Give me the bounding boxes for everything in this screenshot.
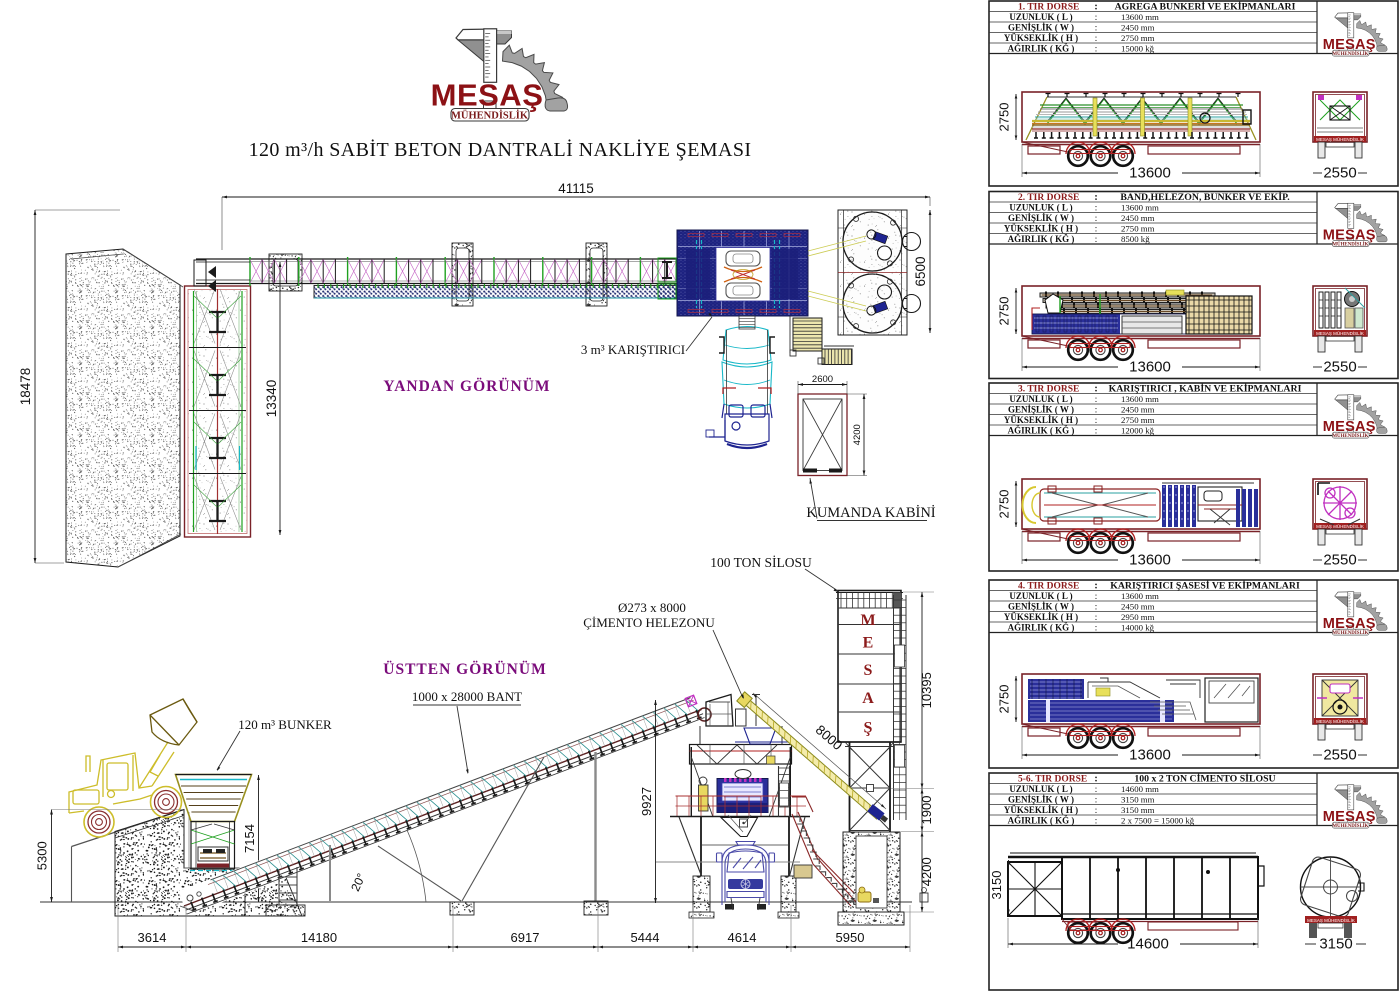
svg-text::: :	[1095, 784, 1098, 794]
svg-text::: :	[1095, 224, 1098, 234]
svg-text:6500: 6500	[913, 256, 928, 286]
svg-text:1000 x 28000 BANT: 1000 x 28000 BANT	[412, 689, 522, 704]
svg-text:100 x 2 TON CİMENTO SİLOSU: 100 x 2 TON CİMENTO SİLOSU	[1134, 772, 1275, 784]
svg-text:2950 mm: 2950 mm	[1121, 612, 1155, 622]
svg-text::: :	[1095, 805, 1098, 815]
svg-text:10395: 10395	[919, 672, 934, 708]
svg-text:13600 mm: 13600 mm	[1121, 12, 1159, 22]
svg-text::: :	[1095, 394, 1098, 404]
svg-text:UZUNLUK ( L ): UZUNLUK ( L )	[1009, 394, 1072, 404]
svg-text:KARIŞTIRICI , KABİN VE EKİPMAN: KARIŞTIRICI , KABİN VE EKİPMANLARI	[1109, 382, 1302, 394]
svg-text::: :	[1095, 234, 1098, 244]
svg-text:12000 kğ: 12000 kğ	[1121, 426, 1155, 436]
svg-text:3. TIR DORSE: 3. TIR DORSE	[1018, 384, 1079, 394]
svg-text:14600 mm: 14600 mm	[1121, 784, 1159, 794]
svg-text:3150 mm: 3150 mm	[1121, 795, 1155, 805]
svg-text::: :	[1095, 612, 1098, 622]
svg-text:YÜKSEKLİK ( H ): YÜKSEKLİK ( H )	[1004, 612, 1078, 622]
svg-text::: :	[1095, 203, 1098, 213]
svg-text::: :	[1095, 213, 1098, 223]
svg-text::: :	[1095, 12, 1098, 22]
svg-text:E: E	[863, 635, 874, 652]
svg-text:15000 kğ: 15000 kğ	[1121, 44, 1155, 54]
svg-text:2 x 7500 = 15000 kğ: 2 x 7500 = 15000 kğ	[1121, 816, 1195, 826]
svg-text:2750 mm: 2750 mm	[1121, 415, 1155, 425]
svg-text:9927: 9927	[639, 787, 654, 816]
svg-text:GENİŞLİK ( W ): GENİŞLİK ( W )	[1008, 213, 1074, 223]
svg-text:6917: 6917	[511, 930, 540, 945]
svg-text:MESAŞ MÜHENDİSLİK: MESAŞ MÜHENDİSLİK	[1316, 330, 1364, 336]
svg-text:14600: 14600	[1127, 936, 1169, 953]
svg-text:5-6. TIR DORSE: 5-6. TIR DORSE	[1018, 774, 1087, 784]
svg-text:4200: 4200	[852, 424, 863, 445]
svg-text::: :	[1095, 591, 1098, 601]
svg-text:13600: 13600	[1129, 165, 1171, 182]
svg-text:13600 mm: 13600 mm	[1121, 394, 1159, 404]
svg-text:UZUNLUK ( L ): UZUNLUK ( L )	[1009, 203, 1072, 213]
svg-text:4. TIR DORSE: 4. TIR DORSE	[1018, 581, 1079, 591]
svg-text:2750: 2750	[997, 685, 1012, 714]
svg-text:AĞIRLIK ( KĞ ): AĞIRLIK ( KĞ )	[1008, 234, 1075, 244]
svg-text:13600: 13600	[1129, 359, 1171, 376]
svg-text:ÇİMENTO HELEZONU: ÇİMENTO HELEZONU	[583, 615, 715, 630]
svg-text:MÜHENDİSLİK: MÜHENDİSLİK	[451, 109, 529, 122]
svg-text:2750: 2750	[997, 297, 1012, 326]
svg-text:UZUNLUK ( L ): UZUNLUK ( L )	[1009, 591, 1072, 601]
svg-text:3150: 3150	[989, 871, 1004, 900]
svg-text::: :	[1095, 33, 1098, 43]
svg-text:MESAŞ MÜHENDİSLİK: MESAŞ MÜHENDİSLİK	[1316, 718, 1364, 724]
svg-text::: :	[1094, 581, 1097, 592]
svg-text::: :	[1094, 192, 1097, 203]
svg-text:13340: 13340	[264, 380, 279, 418]
svg-text:3150: 3150	[1319, 936, 1352, 953]
svg-text:GENİŞLİK ( W ): GENİŞLİK ( W )	[1008, 23, 1074, 33]
svg-text::: :	[1095, 602, 1098, 612]
svg-text::: :	[1095, 23, 1098, 33]
svg-text:1900: 1900	[919, 796, 934, 825]
svg-text:A: A	[862, 690, 874, 707]
svg-text:UZUNLUK ( L ): UZUNLUK ( L )	[1009, 12, 1072, 22]
svg-text:1. TIR DORSE: 1. TIR DORSE	[1018, 2, 1079, 12]
svg-text:2450 mm: 2450 mm	[1121, 23, 1155, 33]
svg-text:3150 mm: 3150 mm	[1121, 805, 1155, 815]
svg-text:S: S	[864, 662, 873, 679]
svg-text:3 m³ KARIŞTIRICI: 3 m³ KARIŞTIRICI	[581, 342, 685, 357]
svg-text:7154: 7154	[242, 824, 257, 853]
svg-text:YÜKSEKLİK ( H ): YÜKSEKLİK ( H )	[1004, 224, 1078, 234]
svg-text:2750 mm: 2750 mm	[1121, 224, 1155, 234]
svg-text:2550: 2550	[1323, 359, 1356, 376]
svg-text:M: M	[860, 612, 875, 629]
svg-text::: :	[1095, 405, 1098, 415]
svg-text:2450 mm: 2450 mm	[1121, 213, 1155, 223]
svg-text:YÜKSEKLİK ( H ): YÜKSEKLİK ( H )	[1004, 415, 1078, 425]
svg-text::: :	[1094, 384, 1097, 395]
svg-text:41115: 41115	[558, 181, 594, 196]
svg-text:100 TON SİLOSU: 100 TON SİLOSU	[710, 555, 812, 570]
svg-text:14000 kğ: 14000 kğ	[1121, 623, 1155, 633]
svg-text:2750: 2750	[997, 490, 1012, 519]
svg-text:13600 mm: 13600 mm	[1121, 203, 1159, 213]
svg-text:GENİŞLİK ( W ): GENİŞLİK ( W )	[1008, 405, 1074, 415]
svg-text::: :	[1095, 415, 1098, 425]
svg-text:MESAŞ: MESAŞ	[431, 78, 544, 113]
svg-text:KUMANDA KABİNİ: KUMANDA KABİNİ	[806, 505, 935, 521]
svg-text:2550: 2550	[1323, 747, 1356, 764]
svg-text::: :	[1094, 774, 1097, 785]
svg-text:13600 mm: 13600 mm	[1121, 591, 1159, 601]
svg-text:GENİŞLİK ( W ): GENİŞLİK ( W )	[1008, 602, 1074, 612]
svg-text:YÜKSEKLİK ( H ): YÜKSEKLİK ( H )	[1004, 33, 1078, 43]
svg-text:120 m³ BUNKER: 120 m³ BUNKER	[238, 717, 332, 732]
svg-text::: :	[1095, 44, 1098, 54]
svg-text:2550: 2550	[1323, 165, 1356, 182]
svg-text:2. TIR DORSE: 2. TIR DORSE	[1018, 193, 1079, 203]
svg-text::: :	[1095, 426, 1098, 436]
svg-text:5444: 5444	[631, 930, 660, 945]
svg-text:AĞIRLIK ( KĞ ): AĞIRLIK ( KĞ )	[1008, 426, 1075, 436]
svg-text:AGREGA BUNKERİ VE EKİPMANLARI: AGREGA BUNKERİ VE EKİPMANLARI	[1115, 0, 1296, 12]
svg-text:AĞIRLIK ( KĞ ): AĞIRLIK ( KĞ )	[1008, 44, 1075, 54]
svg-text::: :	[1095, 623, 1098, 633]
svg-text:2450 mm: 2450 mm	[1121, 602, 1155, 612]
svg-text:ÜSTTEN GÖRÜNÜM: ÜSTTEN GÖRÜNÜM	[383, 661, 546, 678]
svg-text:4614: 4614	[728, 930, 757, 945]
svg-text:13600: 13600	[1129, 552, 1171, 569]
svg-text:18478: 18478	[18, 368, 33, 406]
svg-text:GENİŞLİK ( W ): GENİŞLİK ( W )	[1008, 795, 1074, 805]
svg-text:5950: 5950	[836, 930, 865, 945]
svg-text:2550: 2550	[1323, 552, 1356, 569]
svg-text:4200: 4200	[919, 857, 934, 886]
svg-text:BAND,HELEZON, BUNKER VE EKİP.: BAND,HELEZON, BUNKER VE EKİP.	[1120, 191, 1290, 203]
svg-text:Ş: Ş	[864, 720, 873, 737]
svg-text:13600: 13600	[1129, 747, 1171, 764]
svg-text:8500 kğ: 8500 kğ	[1121, 234, 1150, 244]
svg-text:Ø273 x 8000: Ø273 x 8000	[618, 600, 686, 615]
svg-text:120 m³/h SABİT BETON DANTRALİ: 120 m³/h SABİT BETON DANTRALİ NAKLİYE ŞE…	[249, 138, 752, 161]
svg-text::: :	[1095, 795, 1098, 805]
svg-text:YANDAN GÖRÜNÜM: YANDAN GÖRÜNÜM	[383, 378, 550, 395]
svg-text:3614: 3614	[138, 930, 167, 945]
svg-text:AĞIRLIK ( KĞ ): AĞIRLIK ( KĞ )	[1008, 816, 1075, 826]
svg-text:MESAŞ MÜHENDİSLİK: MESAŞ MÜHENDİSLİK	[1316, 136, 1364, 142]
svg-text:2600: 2600	[812, 374, 833, 385]
svg-text:2750 mm: 2750 mm	[1121, 33, 1155, 43]
svg-text:14180: 14180	[301, 930, 337, 945]
svg-text:MESAŞ MÜHENDİSLİK: MESAŞ MÜHENDİSLİK	[1316, 523, 1364, 529]
svg-text:KARIŞTIRICI ŞASESİ VE EKİPMANL: KARIŞTIRICI ŞASESİ VE EKİPMANLARI	[1110, 579, 1300, 591]
svg-text:YÜKSEKLİK ( H ): YÜKSEKLİK ( H )	[1004, 805, 1078, 815]
svg-text::: :	[1094, 2, 1097, 13]
svg-text:MESAŞ MÜHENDİSLİK: MESAŞ MÜHENDİSLİK	[1307, 917, 1355, 923]
svg-text:2450 mm: 2450 mm	[1121, 405, 1155, 415]
svg-text:AĞIRLIK ( KĞ ): AĞIRLIK ( KĞ )	[1008, 623, 1075, 633]
svg-text:UZUNLUK ( L ): UZUNLUK ( L )	[1009, 784, 1072, 794]
svg-text::: :	[1095, 816, 1098, 826]
svg-text:5300: 5300	[35, 841, 50, 870]
svg-text:2750: 2750	[997, 103, 1012, 132]
